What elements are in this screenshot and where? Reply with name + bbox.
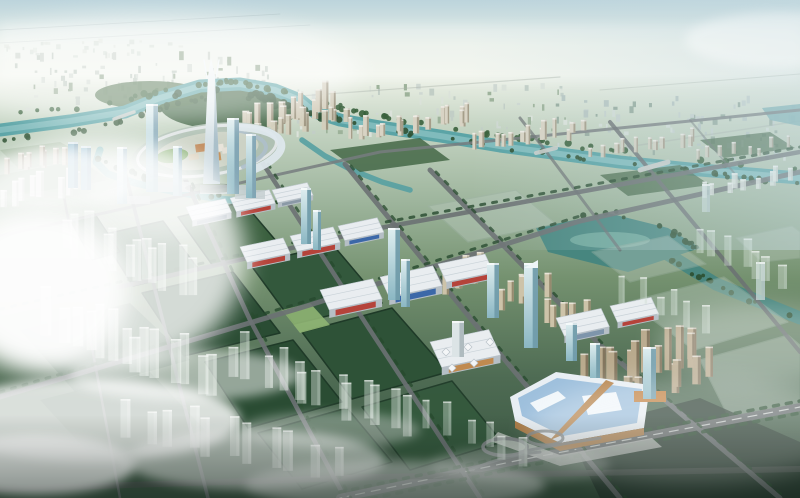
- building-roof: [339, 374, 348, 376]
- building-shade: [367, 115, 369, 136]
- building-roof: [295, 361, 305, 363]
- building-roof: [477, 252, 484, 254]
- building-shade: [554, 305, 556, 327]
- distant-city-center: [405, 92, 410, 96]
- river-south-trees: [24, 133, 30, 139]
- tower-shade: [395, 228, 400, 300]
- building-roof: [624, 376, 633, 378]
- building-shade: [282, 117, 284, 133]
- distant-city-center: [416, 84, 420, 90]
- building-shade: [401, 119, 403, 135]
- building-roof: [286, 114, 291, 116]
- rendering-stage: [0, 0, 800, 498]
- building-roof: [778, 265, 787, 267]
- building-roof: [311, 370, 320, 372]
- building-shade: [503, 289, 505, 310]
- river-north-trees: [453, 127, 458, 132]
- building-roof: [464, 103, 469, 105]
- distant-city-center: [419, 92, 423, 95]
- tower-cap: [401, 259, 410, 261]
- tower-shade: [407, 259, 410, 307]
- distant-city-center: [312, 131, 316, 134]
- building-roof: [348, 117, 352, 119]
- tower-cap: [590, 343, 600, 345]
- distant-city-center: [436, 108, 438, 115]
- building-roof: [391, 388, 400, 390]
- building-roof: [278, 117, 283, 119]
- building-roof: [671, 289, 677, 291]
- building-roof: [341, 383, 351, 385]
- building-shade: [463, 110, 465, 124]
- building-shade: [645, 277, 647, 304]
- building-roof: [544, 298, 551, 300]
- building-roof: [364, 380, 373, 382]
- building-shade: [317, 370, 320, 405]
- river-south-trees: [71, 129, 78, 136]
- tower-cap: [388, 228, 400, 230]
- building-shade: [662, 297, 665, 315]
- building-roof: [657, 297, 665, 299]
- tower-shade: [318, 210, 321, 250]
- building-shade: [512, 280, 514, 301]
- building-shade: [303, 372, 306, 404]
- building-shade: [400, 116, 402, 132]
- building-roof: [329, 107, 334, 109]
- building-roof: [752, 251, 760, 253]
- building-roof: [761, 256, 770, 258]
- building-roof: [443, 401, 451, 403]
- building-roof: [423, 400, 430, 402]
- building-roof: [519, 274, 525, 276]
- cloud: [70, 349, 300, 401]
- distant-city-center: [376, 85, 379, 89]
- distant-city-center: [297, 131, 299, 137]
- building-shade: [304, 107, 306, 127]
- building-roof: [569, 302, 576, 304]
- building-roof: [550, 305, 556, 307]
- tower-cap: [452, 321, 464, 323]
- building-shade: [784, 265, 787, 289]
- building-shade: [448, 105, 449, 124]
- tower-shade: [533, 263, 538, 348]
- building-roof: [445, 105, 449, 107]
- tower-cap: [246, 134, 256, 136]
- tower-cap: [313, 210, 321, 212]
- building-roof: [397, 116, 402, 118]
- river-south-trees: [451, 137, 455, 141]
- city-masterplan-aerial-rendering: [0, 0, 800, 498]
- canal-trees: [696, 274, 702, 280]
- building-shade: [467, 103, 469, 123]
- tower-cap: [643, 347, 656, 349]
- building-roof: [271, 120, 278, 122]
- tower-shade: [307, 188, 311, 244]
- tower-cap: [301, 188, 311, 190]
- building-roof: [631, 340, 639, 342]
- tower-shade: [494, 263, 499, 318]
- building-shade: [289, 114, 291, 134]
- tower-cap: [566, 323, 577, 325]
- building-roof: [462, 255, 469, 257]
- scene-layers: [0, 0, 800, 498]
- building-shade: [757, 251, 760, 279]
- building-roof: [280, 347, 289, 349]
- distant-city-center: [438, 117, 441, 124]
- tower-shade: [459, 321, 464, 357]
- tower-shade: [252, 134, 256, 198]
- building-shade: [675, 289, 677, 315]
- building-roof: [370, 385, 379, 387]
- distant-city-center: [369, 132, 372, 137]
- tower-cap: [487, 263, 499, 265]
- building-roof: [545, 273, 552, 275]
- distant-city-center: [441, 97, 443, 104]
- distant-city-center: [420, 98, 422, 105]
- distant-city-center: [338, 130, 343, 134]
- building-roof: [584, 299, 591, 301]
- building-shade: [383, 123, 385, 136]
- building-roof: [702, 305, 710, 307]
- building-roof: [380, 123, 385, 125]
- building-shade: [417, 116, 419, 134]
- river-south-trees: [81, 128, 87, 134]
- building-roof: [609, 351, 618, 353]
- river-south-trees: [352, 121, 356, 125]
- river-south-trees: [12, 137, 16, 141]
- tower-shade: [573, 323, 577, 361]
- distant-city-center: [376, 113, 378, 115]
- distant-city-center: [390, 111, 392, 117]
- building-shade: [326, 110, 328, 130]
- canal-trees: [690, 272, 694, 276]
- canal-trees: [701, 274, 705, 278]
- building-shade: [332, 107, 334, 121]
- river-north-trees: [381, 113, 387, 119]
- building-shade: [549, 273, 551, 298]
- distant-city-center: [372, 95, 374, 97]
- building-roof: [403, 395, 412, 397]
- distant-city-center: [449, 91, 451, 99]
- building-roof: [343, 108, 349, 110]
- building-roof: [683, 301, 690, 303]
- building-roof: [460, 110, 465, 112]
- tower-shade: [596, 343, 600, 378]
- tower-cap: [173, 146, 182, 148]
- building-roof: [240, 331, 250, 333]
- building-roof: [641, 329, 650, 331]
- building-shade: [307, 112, 309, 132]
- building-roof: [560, 302, 567, 304]
- river-north-trees: [355, 109, 359, 113]
- building-roof: [322, 110, 328, 112]
- building-roof: [580, 353, 588, 355]
- tower-shade: [234, 118, 239, 194]
- distant-city-center: [429, 89, 434, 96]
- river-south-trees: [407, 133, 412, 138]
- building-shade: [767, 256, 770, 281]
- building-roof: [619, 276, 625, 278]
- building-roof: [606, 347, 614, 349]
- building-roof: [498, 289, 505, 291]
- building-roof: [508, 280, 514, 282]
- building-shade: [335, 109, 337, 121]
- building-roof: [363, 115, 369, 117]
- river-south-trees: [77, 127, 82, 132]
- bottom-vignette: [0, 415, 800, 498]
- building-roof: [228, 347, 238, 349]
- river-south-trees: [2, 138, 7, 143]
- building-roof: [413, 116, 419, 118]
- building-shade: [623, 276, 625, 304]
- building-roof: [425, 117, 431, 119]
- building-roof: [640, 277, 647, 279]
- distant-city-center: [450, 111, 454, 118]
- building-shade: [429, 117, 431, 130]
- building-shade: [351, 117, 352, 139]
- building-shade: [636, 340, 639, 380]
- distant-city-center: [404, 84, 407, 90]
- distant-city-center: [453, 96, 455, 100]
